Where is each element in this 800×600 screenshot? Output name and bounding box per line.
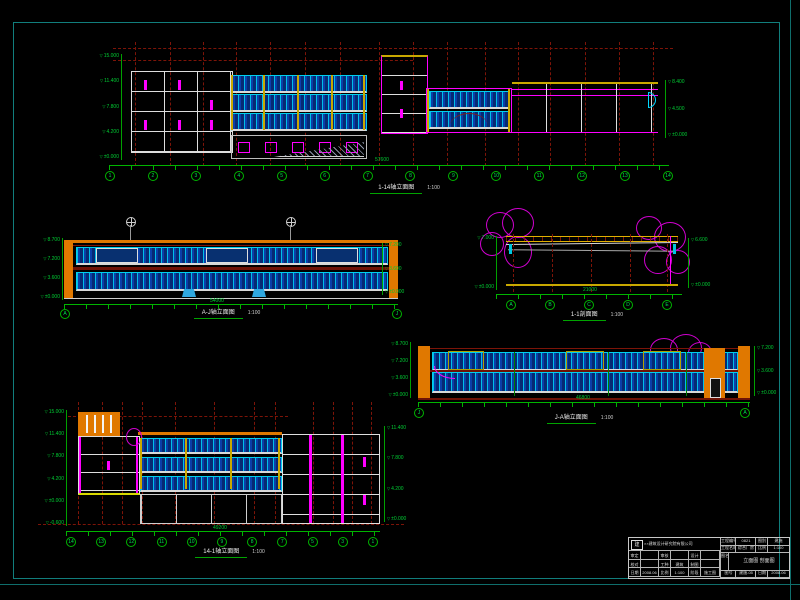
cad-sheet: 15.00011.4007.8004.200±0.000	[0, 0, 800, 600]
mid-block	[426, 88, 512, 133]
sheet-outer-border-bottom	[0, 584, 800, 585]
signature-cell: 建筑	[671, 560, 689, 569]
drawing-title-text: 14-1轴立面图	[195, 546, 247, 558]
signature-cell	[701, 551, 720, 560]
drawing-scale: 1:100	[611, 312, 624, 318]
building-body	[418, 346, 750, 400]
signature-cell	[671, 551, 689, 560]
level-mark: 11.400	[387, 426, 406, 431]
axis-bubble: 5	[277, 171, 287, 181]
signature-cell: 阶段	[689, 568, 701, 577]
title-block: 建 ××建筑设计研究院有限公司 审定审核设计校对工种建筑制图日期2008.06比…	[628, 537, 790, 579]
level-mark: 4.200	[387, 487, 404, 492]
axis-bubble: 10	[491, 171, 501, 181]
axis-bubble: 13	[620, 171, 630, 181]
level-dimension-chain-left: 15.00011.4007.8004.200±0.000	[95, 54, 122, 160]
signature-cell: 校对	[629, 560, 641, 569]
signature-cell: 1:100	[671, 568, 689, 577]
sheet-outer-border-right	[790, 0, 791, 600]
drawing-title: 14-1轴立面图1:100	[165, 546, 295, 558]
axis-bubble: 5	[308, 537, 318, 547]
drawing-scale: 1:100	[427, 185, 440, 191]
signature-cell	[701, 560, 720, 569]
axis-bubble: 3	[191, 171, 201, 181]
roof-line	[506, 242, 678, 245]
signature-cell: 工种	[659, 560, 671, 569]
level-mark: 4.200	[47, 477, 64, 482]
axis-bubble: 12	[577, 171, 587, 181]
level-mark: 11.400	[45, 432, 64, 437]
level-mark: 7.200	[391, 359, 408, 364]
detail-marker-icon	[126, 217, 136, 227]
level-mark: 15.000	[100, 54, 119, 59]
axis-bubble: E	[662, 300, 672, 310]
overall-dimension: 46800	[576, 396, 590, 401]
axis-bubble: 12	[126, 537, 136, 547]
axis-bubble: J	[392, 309, 402, 319]
level-mark: ±0.000	[475, 285, 494, 290]
level-mark: 3.600	[43, 276, 60, 281]
axis-bubble: 1	[368, 537, 378, 547]
signature-cell	[641, 551, 659, 560]
entrance-canopy	[252, 289, 266, 297]
stair-tower	[78, 412, 120, 436]
signature-cell: 审定	[629, 551, 641, 560]
signature-cell: 制图	[689, 560, 701, 569]
field-value: 2008.06	[767, 570, 789, 578]
drawing-title-text: 1-14轴立面图	[370, 182, 422, 194]
wall-line	[670, 236, 671, 286]
signature-cell: 日期	[629, 568, 641, 577]
level-dimension-chain-left: 8.7007.2003.600±0.000	[38, 238, 63, 300]
level-dimension-chain-right: 11.4007.8004.200±0.000	[384, 426, 407, 522]
level-mark: 3.600	[385, 267, 402, 272]
level-dimension-chain-left: 7.000±0.000	[476, 236, 497, 290]
overall-dimension: 21000	[583, 288, 597, 293]
drawing-title-text: 1-1剖面图	[563, 309, 606, 321]
level-mark: 7.800	[47, 454, 64, 459]
field-value: 建施-05	[735, 570, 756, 578]
drawing-scale: 1:100	[601, 415, 614, 421]
level-mark: 7.200	[385, 243, 402, 248]
drawing-title: J-A轴立面图1:100	[515, 412, 645, 424]
level-mark: ±0.000	[691, 283, 710, 288]
level-mark: 7.200	[43, 257, 60, 262]
floor-beam	[506, 284, 678, 286]
axis-bubble: 14	[663, 171, 673, 181]
axis-bubble: 9	[448, 171, 458, 181]
elevation-drawing-bottom-right: 8.7007.2003.600±0.000 7.2003.600±0.000 4…	[388, 336, 776, 430]
roof-band	[138, 432, 282, 435]
drawing-title: 1-1剖面图1:100	[538, 309, 648, 321]
level-mark: -0.600	[46, 521, 64, 526]
level-dimension-chain-right: 7.2003.600±0.000	[754, 346, 777, 396]
elevation-drawing-middle-left: 8.7007.2003.600±0.000 7.2003.600±0.000 5…	[38, 213, 398, 320]
level-mark: 11.400	[100, 79, 119, 84]
signature-grid: 审定审核设计校对工种建筑制图日期2008.06比例1:100阶段施工图	[629, 551, 720, 577]
axis-bubble: J	[414, 408, 424, 418]
roof-truss	[506, 236, 678, 242]
signature-cell: 施工图	[701, 568, 720, 577]
axis-bubble: 7	[363, 171, 373, 181]
level-mark: 7.800	[387, 456, 404, 461]
level-mark: ±0.000	[668, 133, 687, 138]
building-body	[64, 240, 398, 299]
signature-cell: 2008.06	[641, 568, 659, 577]
dimension-line	[109, 165, 669, 170]
dimension-line	[66, 531, 380, 536]
level-mark: 7.000	[477, 236, 494, 241]
level-mark: 8.700	[43, 238, 60, 243]
axis-bubble: 1	[105, 171, 115, 181]
level-dimension-chain-left: 15.00011.4007.8004.200±0.000-0.600	[38, 410, 67, 526]
level-mark: 8.400	[668, 80, 685, 85]
axis-bubble: 6	[320, 171, 330, 181]
signature-cell	[641, 560, 659, 569]
drawing-title: A-J轴立面图1:100	[162, 307, 292, 319]
level-mark: 7.800	[102, 105, 119, 110]
level-mark: 4.500	[668, 107, 685, 112]
company-name: ××建筑设计研究院有限公司	[644, 541, 719, 547]
signature-cell: 设计	[689, 551, 701, 560]
section-block	[131, 71, 233, 153]
signature-cell: 审核	[659, 551, 671, 560]
drawing-title-text: A-J轴立面图	[194, 307, 243, 319]
level-mark: ±0.000	[41, 295, 60, 300]
right-wing	[512, 82, 658, 133]
level-mark: 8.700	[391, 342, 408, 347]
drawing-scale: 1:100	[248, 310, 261, 316]
level-mark: ±0.000	[387, 517, 406, 522]
level-mark: ±0.000	[385, 290, 404, 295]
level-mark: ±0.000	[389, 393, 408, 398]
level-mark: ±0.000	[45, 499, 64, 504]
level-mark: 6.600	[691, 238, 708, 243]
drawing-scale: 1:100	[252, 549, 265, 555]
axis-bubble: 4	[234, 171, 244, 181]
dimension-line	[496, 294, 682, 299]
level-mark: 3.600	[391, 376, 408, 381]
level-mark: ±0.000	[100, 155, 119, 160]
right-section	[282, 434, 380, 524]
storefront	[140, 494, 282, 524]
drawing-name: 立面图 剖面图	[728, 552, 789, 571]
overall-dimension: 57600	[375, 158, 389, 163]
signature-cell: 比例	[659, 568, 671, 577]
drawing-title-text: J-A轴立面图	[547, 412, 596, 424]
detail-marker-icon	[286, 217, 296, 227]
axis-bubble: 2	[148, 171, 158, 181]
axis-bubble: A	[60, 309, 70, 319]
level-mark: ±0.000	[757, 391, 776, 396]
entrance-canopy	[182, 289, 196, 297]
ground-floor	[231, 135, 367, 159]
dimension-line	[418, 402, 750, 407]
level-dimension-chain-right: 6.600±0.000	[688, 238, 709, 288]
elevation-drawing-bottom-left: 15.00011.4007.8004.200±0.000-0.600	[38, 402, 404, 558]
axis-bubble: A	[506, 300, 516, 310]
axis-bubble: 13	[96, 537, 106, 547]
level-mark: 7.200	[757, 346, 774, 351]
axis-bubble: 14	[66, 537, 76, 547]
level-dimension-chain-right: 7.2003.600±0.000	[382, 243, 401, 295]
axis-bubble: A	[740, 408, 750, 418]
field-label: 图号	[720, 570, 736, 578]
elevation-drawing-top: 15.00011.4007.8004.200±0.000	[95, 38, 695, 193]
axis-bubble: 8	[405, 171, 415, 181]
level-mark: 3.600	[757, 369, 774, 374]
section-drawing-middle-right: 7.000±0.000 6.600±0.000 21000 ABCDE 1-1剖…	[468, 206, 708, 322]
drawing-title: 1-14轴立面图1:100	[335, 182, 475, 194]
axis-bubble-row: 1234567891011121314	[105, 171, 673, 181]
stair-tower	[704, 348, 725, 398]
stair-tower-section	[381, 55, 428, 134]
axis-bubble: 3	[338, 537, 348, 547]
level-dimension-chain-left: 8.7007.2003.600±0.000	[388, 342, 411, 398]
level-mark: 15.000	[45, 410, 64, 415]
level-dimension-chain-right: 8.4004.500±0.000	[665, 80, 694, 138]
company-logo: 建	[631, 540, 643, 550]
level-mark: 4.200	[102, 130, 119, 135]
axis-bubble: 11	[534, 171, 544, 181]
